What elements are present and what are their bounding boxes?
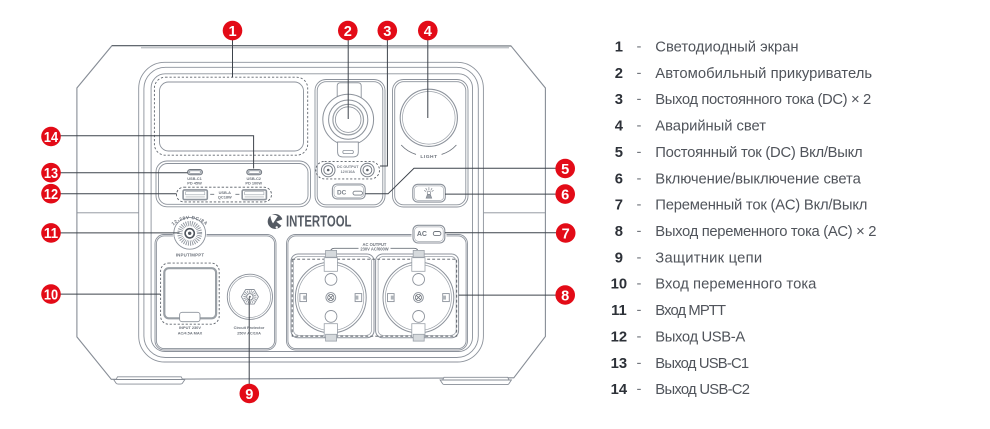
svg-text:AC: AC xyxy=(417,231,427,238)
svg-text:PD 45W: PD 45W xyxy=(187,181,202,186)
svg-text:Автомобильный прикуриватель: Автомобильный прикуриватель xyxy=(655,66,872,82)
svg-text:7: 7 xyxy=(562,226,570,242)
svg-text:8: 8 xyxy=(615,224,623,240)
svg-text:-: - xyxy=(637,303,642,319)
svg-text:DC: DC xyxy=(337,190,347,197)
svg-text:4: 4 xyxy=(615,119,624,135)
svg-text:9: 9 xyxy=(245,387,253,403)
svg-text:230V AC/600W: 230V AC/600W xyxy=(360,247,388,252)
svg-text:Переменный ток (AC) Вкл/Выкл: Переменный ток (AC) Вкл/Выкл xyxy=(655,198,867,214)
svg-text:INPUT/MPPT: INPUT/MPPT xyxy=(176,253,205,258)
svg-text:13: 13 xyxy=(44,166,58,182)
svg-text:QC18W: QC18W xyxy=(218,195,232,200)
svg-text:12: 12 xyxy=(611,330,627,346)
svg-text:6: 6 xyxy=(615,171,623,187)
svg-text:14: 14 xyxy=(44,130,59,146)
svg-text:3: 3 xyxy=(615,92,623,108)
svg-text:11: 11 xyxy=(44,226,58,242)
svg-text:Включение/выключение света: Включение/выключение света xyxy=(655,171,861,187)
svg-text:5: 5 xyxy=(615,145,623,161)
svg-text:INTERTOOL: INTERTOOL xyxy=(286,213,352,230)
svg-text:5: 5 xyxy=(561,162,569,178)
svg-text:14: 14 xyxy=(611,382,628,398)
svg-text:4: 4 xyxy=(424,24,433,40)
svg-text:12V/10A: 12V/10A xyxy=(341,170,356,174)
svg-text:-: - xyxy=(637,65,642,81)
svg-text:2: 2 xyxy=(615,66,623,82)
svg-text:7: 7 xyxy=(615,198,623,214)
svg-text:2: 2 xyxy=(344,24,352,40)
svg-text:-: - xyxy=(637,382,642,398)
svg-text:Выход переменного тока (AC) ×: Выход переменного тока (AC) × 2 xyxy=(655,224,876,240)
svg-text:-: - xyxy=(637,171,642,187)
svg-text:Выход USB-A: Выход USB-A xyxy=(655,330,745,346)
svg-text:10: 10 xyxy=(44,287,58,303)
svg-text:Аварийный свет: Аварийный свет xyxy=(655,119,766,135)
svg-text:Вход MPTT: Вход MPTT xyxy=(655,303,726,319)
svg-text:Светодиодный экран: Светодиодный экран xyxy=(655,40,798,56)
svg-text:11: 11 xyxy=(611,303,627,319)
svg-text:-: - xyxy=(637,39,642,55)
svg-text:-: - xyxy=(637,92,642,108)
svg-text:-: - xyxy=(637,329,642,345)
svg-text:9: 9 xyxy=(615,250,623,266)
svg-text:Выход USB-C2: Выход USB-C2 xyxy=(655,382,750,398)
svg-text:Постоянный ток (DC) Вкл/Выкл: Постоянный ток (DC) Вкл/Выкл xyxy=(655,145,862,161)
svg-text:1: 1 xyxy=(228,24,236,40)
svg-text:-: - xyxy=(637,145,642,161)
svg-text:6: 6 xyxy=(561,187,569,203)
svg-text:-: - xyxy=(637,276,642,292)
svg-text:-: - xyxy=(637,250,642,266)
svg-text:AC/4.5A MAX: AC/4.5A MAX xyxy=(178,330,203,335)
svg-text:-: - xyxy=(637,197,642,213)
svg-text:DC OUTPUT: DC OUTPUT xyxy=(337,165,359,169)
svg-text:10: 10 xyxy=(611,277,627,293)
svg-text:-: - xyxy=(637,355,642,371)
svg-text:Вход переменного тока: Вход переменного тока xyxy=(655,277,817,293)
svg-text:-: - xyxy=(637,118,642,134)
svg-text:3: 3 xyxy=(383,24,391,40)
svg-text:Защитник цепи: Защитник цепи xyxy=(655,250,762,266)
svg-text:Выход USB-C1: Выход USB-C1 xyxy=(655,356,749,372)
svg-text:-: - xyxy=(637,224,642,240)
svg-text:LIGHT: LIGHT xyxy=(420,154,437,160)
svg-text:8: 8 xyxy=(561,288,569,304)
svg-text:PD 100W: PD 100W xyxy=(245,181,262,186)
svg-text:12: 12 xyxy=(44,187,58,203)
svg-text:Выход постоянного тока (DC) ×: Выход постоянного тока (DC) × 2 xyxy=(655,92,871,108)
svg-text:13: 13 xyxy=(611,356,627,372)
svg-text:1: 1 xyxy=(615,40,623,56)
svg-text:INPUT 230V: INPUT 230V xyxy=(179,325,201,330)
